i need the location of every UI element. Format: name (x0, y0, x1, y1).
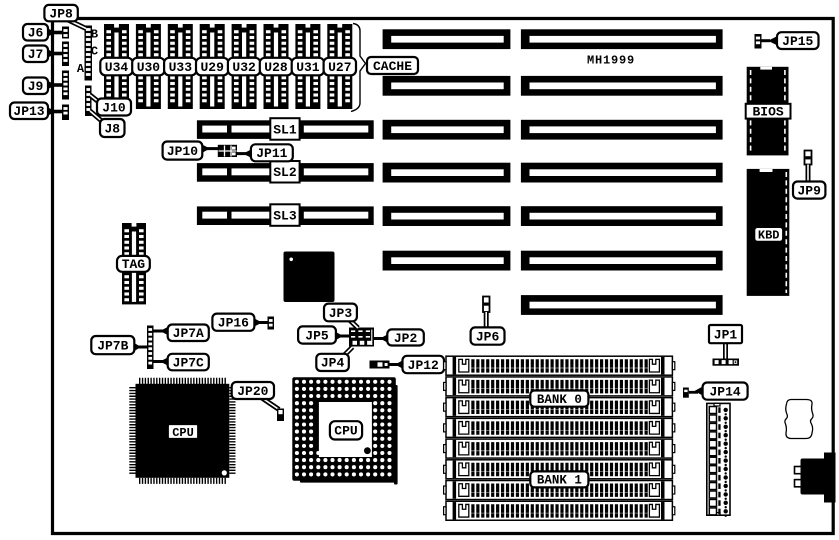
svg-text:JP3: JP3 (329, 306, 353, 321)
svg-text:JP8: JP8 (49, 6, 73, 21)
svg-text:J6: J6 (28, 26, 44, 41)
svg-text:U30: U30 (137, 60, 161, 75)
svg-text:SL1: SL1 (273, 122, 297, 137)
svg-text:JP7C: JP7C (173, 355, 204, 370)
svg-text:J9: J9 (28, 79, 44, 94)
svg-text:BANK 1: BANK 1 (537, 474, 582, 488)
svg-text:CPU: CPU (172, 426, 194, 440)
svg-text:CACHE: CACHE (373, 59, 412, 74)
svg-text:J10: J10 (102, 100, 126, 115)
svg-text:JP15: JP15 (782, 34, 813, 49)
svg-text:J7: J7 (28, 47, 44, 62)
svg-text:U27: U27 (328, 60, 351, 75)
svg-text:JP1: JP1 (714, 327, 738, 342)
svg-text:JP2: JP2 (394, 331, 418, 346)
svg-text:U31: U31 (296, 60, 320, 75)
svg-text:JP7A: JP7A (173, 326, 204, 341)
svg-text:C: C (91, 45, 98, 59)
svg-text:A: A (77, 62, 85, 76)
svg-text:JP12: JP12 (408, 358, 439, 373)
svg-text:JP16: JP16 (218, 316, 249, 331)
svg-text:JP14: JP14 (709, 384, 740, 399)
svg-text:SL3: SL3 (273, 208, 297, 223)
svg-text:KBD: KBD (758, 229, 780, 243)
svg-text:U32: U32 (232, 60, 256, 75)
svg-text:U29: U29 (200, 60, 224, 75)
svg-text:U28: U28 (264, 60, 288, 75)
svg-text:JP10: JP10 (167, 144, 198, 159)
svg-text:B: B (91, 28, 98, 42)
svg-text:JP13: JP13 (13, 104, 44, 119)
svg-text:JP4: JP4 (321, 356, 345, 371)
svg-text:MH1999: MH1999 (587, 54, 635, 68)
svg-text:JP5: JP5 (305, 328, 329, 343)
svg-text:CPU: CPU (334, 424, 357, 439)
svg-text:TAG: TAG (122, 257, 146, 272)
svg-text:BANK 0: BANK 0 (537, 393, 582, 407)
svg-text:JP20: JP20 (237, 384, 268, 399)
svg-text:JP6: JP6 (476, 329, 500, 344)
svg-text:JP9: JP9 (797, 183, 821, 198)
svg-text:J8: J8 (104, 121, 120, 136)
svg-text:BIOS: BIOS (752, 105, 783, 120)
svg-text:JP7B: JP7B (97, 338, 128, 353)
svg-text:JP11: JP11 (256, 146, 287, 161)
svg-text:U34: U34 (105, 60, 129, 75)
svg-text:U33: U33 (169, 60, 193, 75)
svg-text:SL2: SL2 (273, 165, 297, 180)
